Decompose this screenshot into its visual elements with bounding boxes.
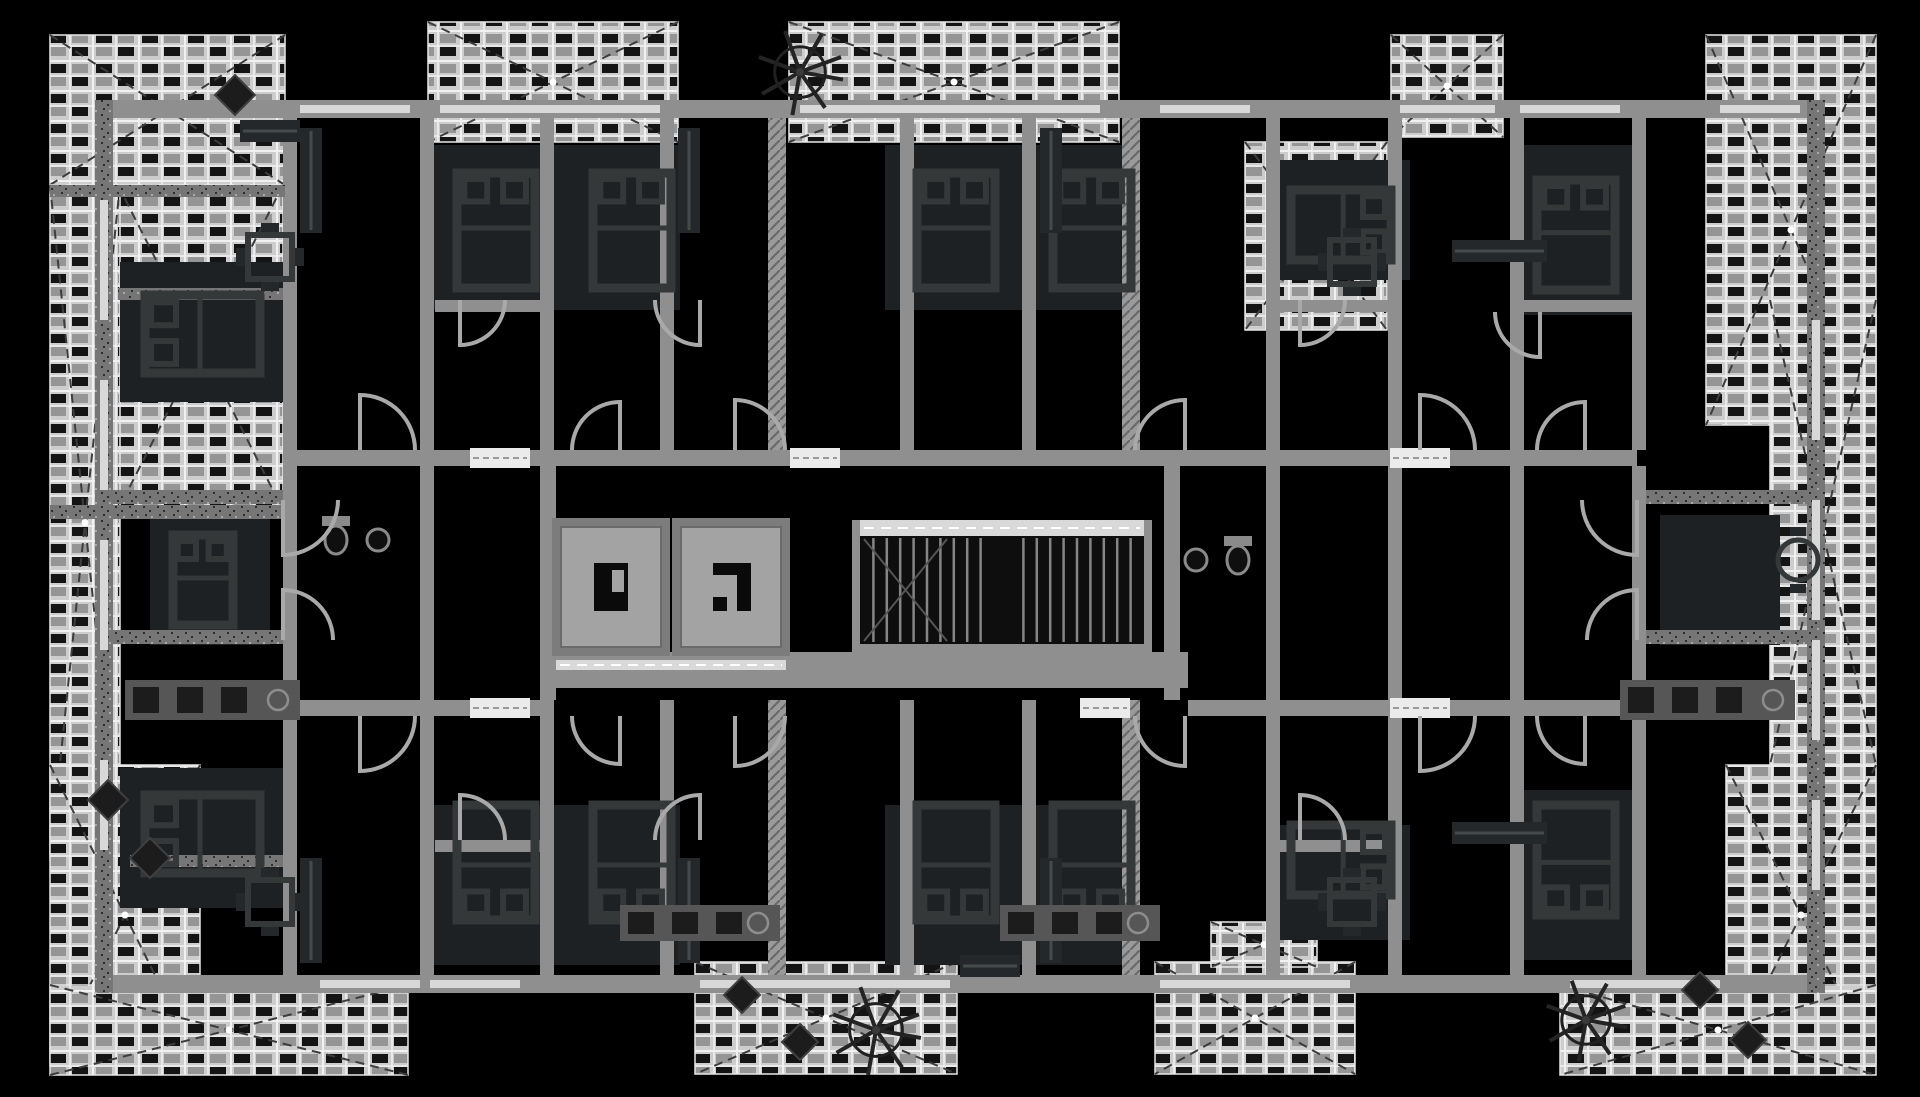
- wall-segment: [113, 630, 283, 644]
- window-strip: [1160, 980, 1350, 988]
- wall-segment: [283, 700, 297, 975]
- window-strip: [1520, 105, 1620, 113]
- stair-side-wall: [1144, 520, 1152, 658]
- wall-segment: [1637, 630, 1807, 644]
- wall-segment: [1632, 700, 1646, 975]
- sink-fixture: [1185, 549, 1207, 571]
- chair: [1318, 253, 1327, 271]
- kitchen-appliance: [221, 687, 247, 713]
- survey-point: [951, 79, 958, 86]
- survey-point: [122, 912, 129, 919]
- kitchen-appliance: [1628, 687, 1654, 713]
- kitchen-appliance: [1008, 912, 1034, 934]
- chair: [1343, 228, 1361, 237]
- wall-segment: [420, 118, 434, 450]
- survey-point: [1252, 1015, 1259, 1022]
- wall-segment: [435, 840, 540, 852]
- window-strip: [1812, 800, 1820, 890]
- wall-segment: [1632, 118, 1646, 450]
- tree-trunk: [872, 1026, 880, 1034]
- wall-segment: [435, 300, 540, 312]
- wall-segment: [420, 700, 434, 975]
- chair: [261, 868, 279, 877]
- chair: [1790, 584, 1806, 593]
- wall-segment: [283, 118, 297, 450]
- survey-point: [1788, 227, 1795, 234]
- window-strip: [440, 105, 660, 113]
- stair-well: [860, 536, 1144, 644]
- wall-segment: [50, 505, 285, 519]
- wall-segment: [1164, 466, 1180, 700]
- stair-side-wall: [852, 520, 860, 658]
- wall-segment: [540, 118, 554, 450]
- window-strip: [800, 105, 1100, 113]
- kitchen-appliance: [133, 687, 159, 713]
- wall-segment: [1266, 700, 1280, 975]
- kitchen-appliance: [1096, 912, 1122, 934]
- survey-point: [1798, 912, 1805, 919]
- wall-segment: [1388, 118, 1402, 450]
- survey-point: [550, 79, 557, 86]
- chair: [295, 248, 304, 266]
- sink-fixture: [367, 529, 389, 551]
- chair: [1377, 893, 1386, 911]
- window-strip: [320, 980, 420, 988]
- chair: [1343, 868, 1361, 877]
- elevator-glyph: [713, 597, 727, 611]
- wall-segment: [900, 118, 914, 450]
- wall-segment: [1510, 466, 1524, 700]
- chair: [1377, 253, 1386, 271]
- chair: [261, 927, 279, 936]
- chair: [1318, 893, 1327, 911]
- survey-point: [82, 519, 89, 526]
- furniture-zone: [1660, 515, 1780, 645]
- wall-segment: [1266, 466, 1280, 700]
- wall-segment: [768, 118, 786, 450]
- chair: [295, 893, 304, 911]
- kitchen-appliance: [177, 687, 203, 713]
- kitchen-appliance: [1672, 687, 1698, 713]
- chair: [261, 223, 279, 232]
- chair: [1343, 287, 1361, 296]
- elevator-glyph: [737, 563, 751, 611]
- wall-segment: [1388, 466, 1402, 700]
- survey-point: [226, 1027, 233, 1034]
- toilet-bowl: [1227, 546, 1249, 574]
- chair: [1790, 527, 1806, 536]
- kitchen-appliance: [716, 912, 742, 934]
- chair: [236, 893, 245, 911]
- wall-segment: [1637, 490, 1807, 504]
- window-strip: [1812, 320, 1820, 440]
- kitchen-appliance: [672, 912, 698, 934]
- chair: [1343, 927, 1361, 936]
- window-strip: [1400, 105, 1495, 113]
- tree-trunk: [1582, 1016, 1590, 1024]
- window-strip: [300, 105, 410, 113]
- window-strip: [1720, 105, 1800, 113]
- kitchen-appliance: [1052, 912, 1078, 934]
- wall-segment: [420, 466, 434, 700]
- wall-segment: [50, 185, 285, 197]
- elevator-cab: [681, 527, 781, 647]
- survey-point: [1715, 1027, 1722, 1034]
- chair: [261, 282, 279, 291]
- window-strip: [100, 380, 108, 490]
- elevator-glyph-notch: [612, 570, 624, 592]
- window-strip: [1160, 105, 1250, 113]
- chair: [236, 248, 245, 266]
- window-strip: [100, 540, 108, 650]
- window-strip: [1812, 640, 1820, 740]
- wall-segment: [1266, 118, 1280, 450]
- wall-segment: [1022, 118, 1036, 450]
- wall-segment: [113, 490, 283, 504]
- wall-segment: [540, 700, 554, 975]
- kitchen-appliance: [628, 912, 654, 934]
- wall-segment: [1280, 300, 1388, 312]
- survey-point: [1444, 83, 1451, 90]
- kitchen-appliance: [1716, 687, 1742, 713]
- window-strip: [100, 200, 108, 320]
- survey-point: [823, 1015, 830, 1022]
- wall-segment: [900, 700, 914, 975]
- tree-trunk: [796, 68, 804, 76]
- wall-segment: [1510, 118, 1524, 450]
- floor-plan-stage: [0, 0, 1920, 1097]
- stair-bottom-wall: [852, 644, 1152, 658]
- window-strip: [430, 980, 520, 988]
- floor-plan-canvas: [0, 0, 1920, 1097]
- wall-segment: [1524, 300, 1632, 312]
- wall-segment: [283, 466, 297, 700]
